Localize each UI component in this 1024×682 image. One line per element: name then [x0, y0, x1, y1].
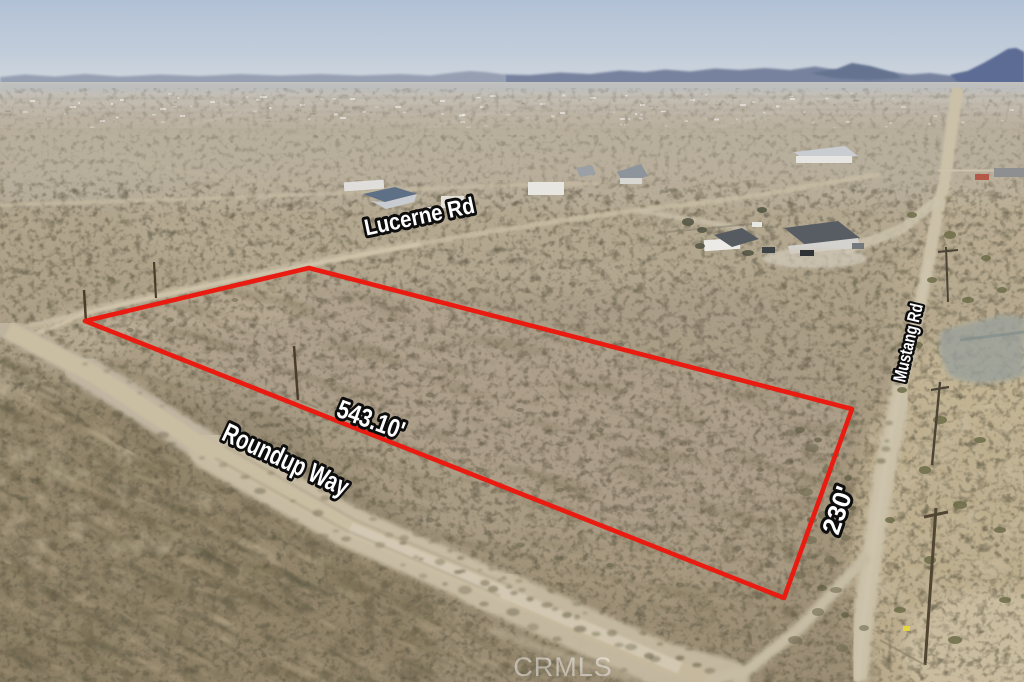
svg-text:CRMLS: CRMLS — [513, 652, 613, 682]
